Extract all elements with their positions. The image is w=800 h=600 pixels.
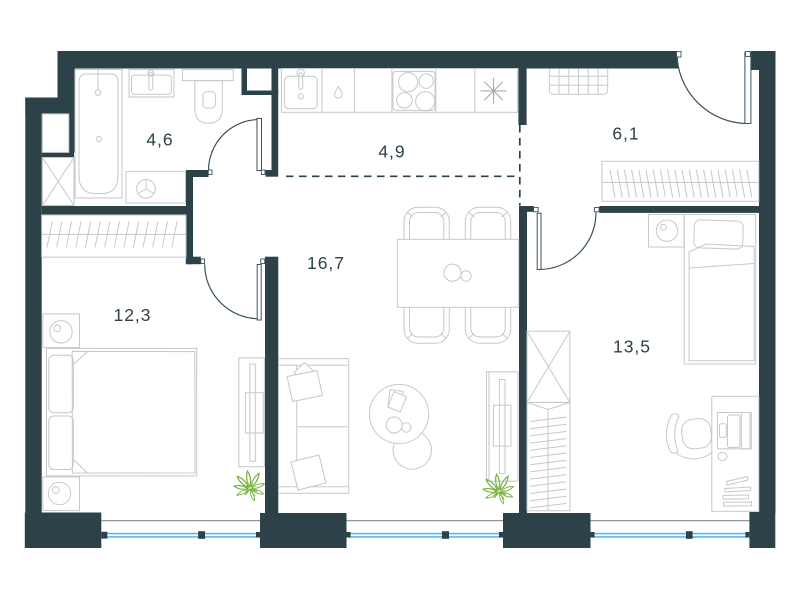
svg-text:6,1: 6,1 <box>612 124 639 144</box>
svg-text:13,5: 13,5 <box>613 337 651 357</box>
svg-text:4,6: 4,6 <box>146 130 173 150</box>
svg-text:16,7: 16,7 <box>307 253 345 273</box>
svg-text:12,3: 12,3 <box>113 305 151 325</box>
svg-text:4,9: 4,9 <box>378 142 405 162</box>
